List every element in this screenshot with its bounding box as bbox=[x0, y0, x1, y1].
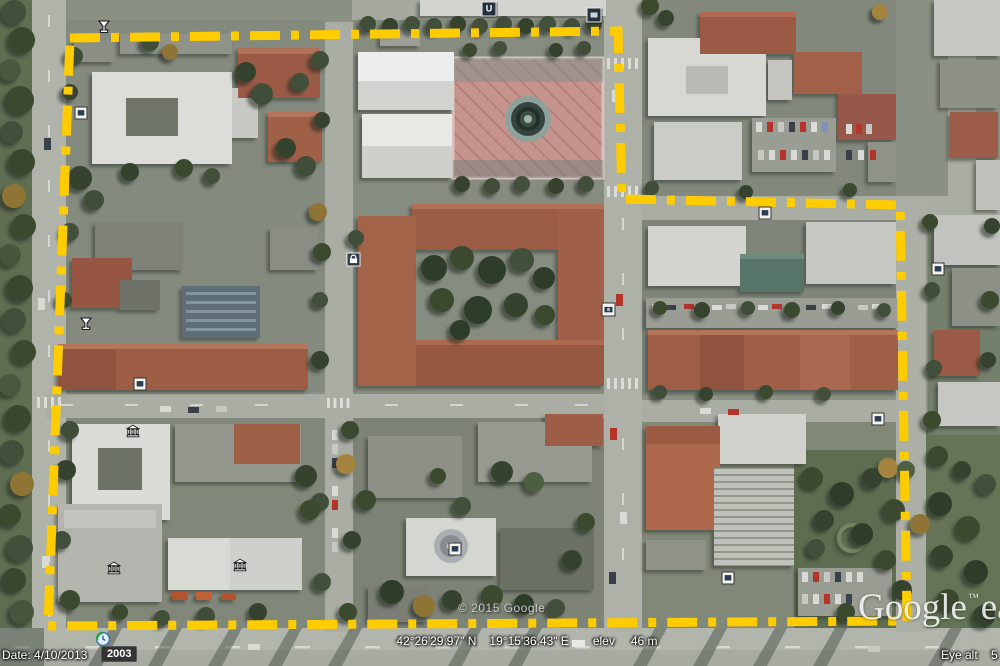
google-earth-logo: Google™earth bbox=[858, 586, 1000, 629]
placemark-icon[interactable] bbox=[721, 571, 736, 586]
imagery-year-badge: 2003 bbox=[101, 646, 137, 662]
shopping-icon[interactable] bbox=[346, 252, 361, 267]
logo-brand: Google bbox=[858, 587, 967, 628]
placemark-icon[interactable] bbox=[871, 412, 886, 427]
museum-icon[interactable] bbox=[233, 558, 248, 573]
placemark-icon[interactable] bbox=[133, 377, 148, 392]
placemark-icon[interactable] bbox=[448, 542, 463, 557]
longitude-value: 19°15'36.43" E bbox=[489, 634, 568, 648]
university-icon[interactable]: U bbox=[482, 2, 497, 17]
bar-icon[interactable] bbox=[79, 317, 94, 332]
trademark-symbol: ™ bbox=[968, 592, 979, 604]
status-bar: Date: 4/10/2013 2003 42°26'29.97" N19°15… bbox=[0, 644, 1000, 666]
placemark-icon[interactable] bbox=[74, 106, 89, 121]
bar-icon[interactable] bbox=[97, 20, 112, 35]
poi-icon-layer: U bbox=[0, 0, 1000, 666]
logo-product: earth bbox=[981, 587, 1000, 628]
museum-icon[interactable] bbox=[107, 561, 122, 576]
camera-icon[interactable] bbox=[601, 302, 616, 317]
imagery-date: Date: 4/10/2013 bbox=[2, 648, 87, 662]
pointer-coordinates: 42°26'29.97" N19°15'36.43" Eelev46 m bbox=[383, 620, 658, 662]
photo-icon[interactable] bbox=[587, 8, 602, 23]
elevation-label: elev bbox=[593, 634, 615, 648]
map-copyright: © 2015 Google bbox=[458, 601, 545, 615]
placemark-icon[interactable] bbox=[758, 206, 773, 221]
latitude-value: 42°26'29.97" N bbox=[396, 634, 476, 648]
google-earth-viewport[interactable]: U © 2015 Google Google™earth Date: 4/10/… bbox=[0, 0, 1000, 666]
placemark-icon[interactable] bbox=[931, 262, 946, 277]
eye-altitude-label: Eye alt bbox=[941, 648, 978, 662]
eye-altitude-value: 5 bbox=[991, 648, 998, 662]
museum-icon[interactable] bbox=[126, 424, 141, 439]
elevation-value: 46 m bbox=[631, 634, 658, 648]
